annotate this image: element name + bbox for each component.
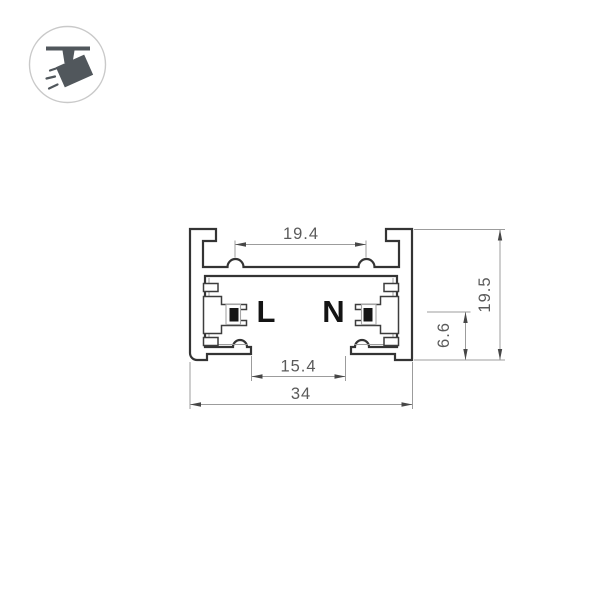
conductor-holder-right (354, 278, 399, 346)
dimension-value: 19.5 (476, 276, 494, 312)
dimension-value: 34 (291, 385, 311, 403)
arrowhead-top (498, 230, 502, 241)
dimension-overall-height: 19.5 (414, 230, 505, 361)
arrowhead-left (190, 402, 201, 406)
arrowhead-top (463, 312, 467, 323)
neutral-conductor-label: N (322, 294, 344, 329)
live-conductor-label: L (257, 294, 276, 329)
arrowhead-bottom (463, 349, 467, 360)
profile-section: L N (190, 229, 412, 360)
conductor-holder-left (204, 278, 249, 346)
dimension-top-width: 19.4 (235, 225, 366, 258)
arrowhead-right (402, 402, 413, 406)
dimension-bottom-opening: 15.4 (252, 356, 346, 381)
drawing-page: L N 19.4 15.4 34 6.6 (0, 0, 600, 600)
technical-drawing-canvas: L N 19.4 15.4 34 6.6 (0, 0, 600, 600)
arrowhead-left (252, 374, 263, 378)
track-spotlight-icon (30, 27, 106, 103)
holder-top-hook (204, 284, 219, 292)
arrowhead-bottom (498, 349, 502, 360)
copper-conductor (230, 308, 239, 322)
profile-outline (190, 229, 412, 360)
extension-lines (235, 241, 366, 258)
dimension-value: 15.4 (280, 358, 316, 376)
holder-bottom-hook (204, 338, 219, 346)
arrowhead-right (355, 242, 366, 246)
icon-ceiling-bar (46, 47, 90, 51)
arrowhead-right (335, 374, 346, 378)
dimension-value: 19.4 (283, 225, 319, 243)
dimension-value: 6.6 (435, 322, 453, 348)
dimension-conductor-height: 6.6 (427, 312, 471, 360)
arrowhead-left (235, 242, 246, 246)
